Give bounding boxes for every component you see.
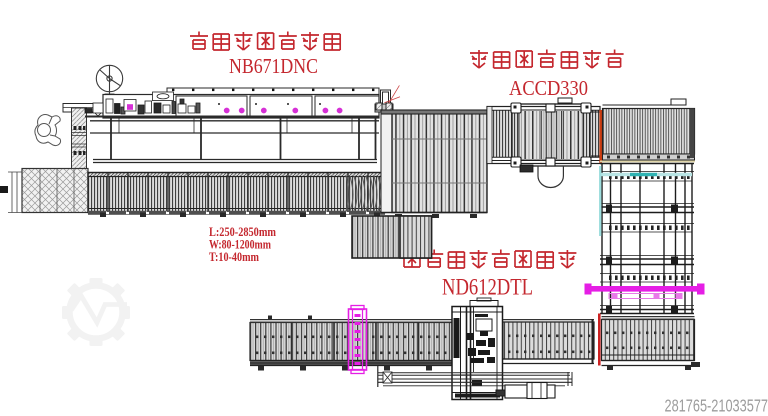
svg-text:NB671DNC: NB671DNC xyxy=(229,54,318,78)
svg-text:ACCD330: ACCD330 xyxy=(509,76,588,100)
svg-text:281765-21033577: 281765-21033577 xyxy=(665,396,768,416)
svg-text:T:10-40mm: T:10-40mm xyxy=(209,250,259,264)
svg-text:ND612DTL: ND612DTL xyxy=(442,275,533,300)
